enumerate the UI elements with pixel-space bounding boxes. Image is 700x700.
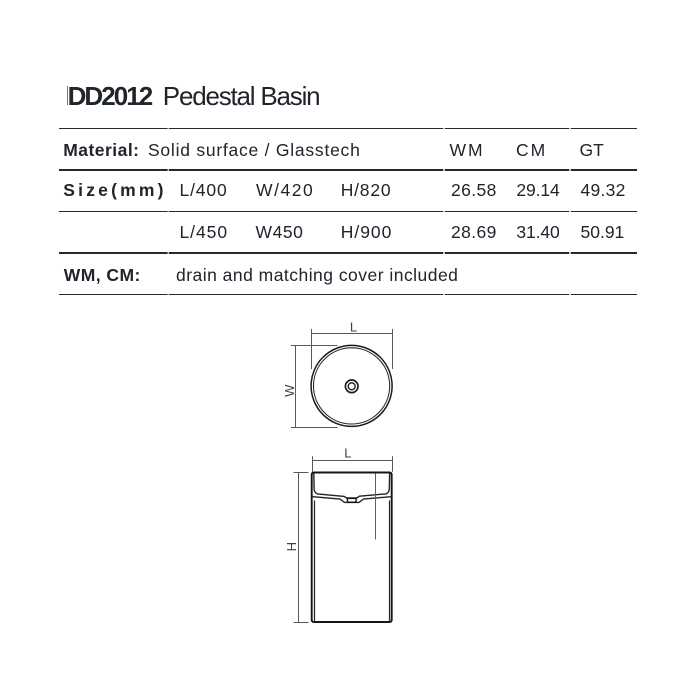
svg-text:H: H	[284, 542, 299, 551]
svg-text:L: L	[350, 319, 357, 334]
svg-text:L: L	[344, 445, 351, 460]
svg-text:W: W	[282, 384, 297, 397]
